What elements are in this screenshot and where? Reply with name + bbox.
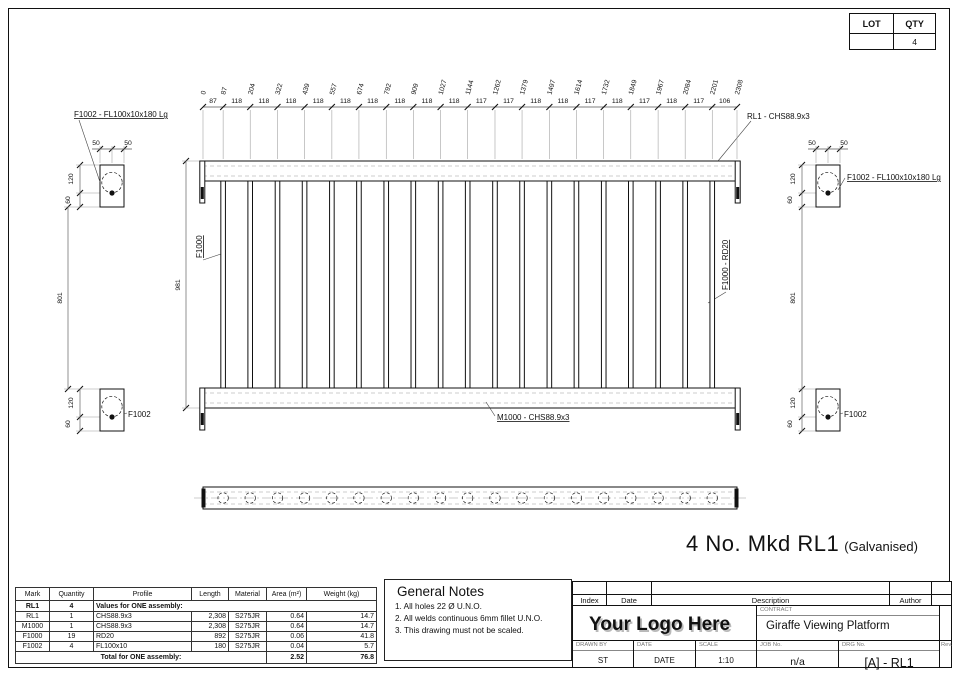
baluster — [574, 181, 579, 388]
label-top-rail: RL1 - CHS88.9x3 — [747, 112, 810, 121]
dim-segment-label: 118 — [557, 98, 568, 105]
label-plate-bottom-left: F1002 — [128, 410, 151, 419]
dim-segment-label: 118 — [449, 98, 460, 105]
dim-segment-label: 118 — [258, 98, 269, 105]
plate-detail-top-right — [816, 165, 840, 207]
leader-line — [79, 120, 100, 182]
plate-detail-bottom-left — [100, 389, 124, 431]
dim-cumulative-label: 1967 — [655, 79, 666, 96]
baluster — [656, 181, 661, 388]
dim-cumulative-label: 87 — [220, 86, 229, 95]
dim-segment-label: 117 — [693, 98, 704, 105]
rev-cell — [606, 582, 651, 594]
dim-overall-height: 981 — [175, 279, 182, 291]
bom-header-material: Material — [229, 588, 267, 601]
table-row: F1000 19 RD20 892 S275JR 0.06 41.8 — [16, 632, 377, 642]
baluster — [302, 181, 307, 388]
bom-cell: 0.64 — [267, 622, 307, 632]
dim-50: 50 — [808, 140, 816, 147]
scale-value: 1:10 — [696, 651, 756, 665]
baluster — [493, 181, 498, 388]
note-item: 2. All welds continuous 6mm fillet U.N.O… — [395, 614, 571, 623]
weld-mark — [736, 413, 739, 425]
bom-cell: 14.7 — [307, 622, 377, 632]
bom-group-mark: RL1 — [16, 601, 50, 612]
bom-cell: 19 — [50, 632, 94, 642]
dim-segment-label: 118 — [231, 98, 242, 105]
note-item: 3. This drawing must not be scaled. — [395, 626, 571, 635]
dim-cumulative-label: 909 — [410, 83, 420, 96]
hole — [109, 414, 114, 419]
bom-group-qty: 4 — [50, 601, 94, 612]
bom-cell: 1 — [50, 622, 94, 632]
weld-mark — [201, 413, 204, 425]
dim-60: 60 — [65, 196, 72, 204]
dim-cumulative-label: 439 — [302, 83, 312, 96]
plate-detail-top-left — [100, 165, 124, 207]
job-no-value: n/a — [757, 651, 838, 668]
dim-segment-label: 117 — [503, 98, 514, 105]
qty-value: 4 — [894, 34, 936, 50]
dim-segment-label: 118 — [313, 98, 324, 105]
dim-cumulative-label: 1732 — [601, 79, 612, 96]
bom-cell: 4 — [50, 642, 94, 652]
baluster — [465, 181, 470, 388]
bom-cell: 2,308 — [192, 612, 229, 622]
dim-cumulative-label: 1849 — [628, 79, 639, 96]
drawing-canvas: 981 120 60 120 60 801 120 60 8 — [0, 0, 960, 678]
baluster — [438, 181, 443, 388]
caption-main: 4 No. Mkd RL1 — [686, 531, 839, 556]
drawing-sheet: 981 120 60 120 60 801 120 60 8 — [0, 0, 960, 678]
date-label: DATE — [634, 641, 695, 651]
hole — [825, 414, 830, 419]
dim-segment-label: 118 — [612, 98, 623, 105]
date-cell: DATE DATE — [633, 640, 695, 667]
baluster — [547, 181, 552, 388]
drawn-by-value: ST — [573, 651, 633, 665]
bom-total-area: 2.52 — [267, 652, 307, 664]
rev-cell — [651, 582, 889, 594]
bom-cell: RL1 — [16, 612, 50, 622]
lot-value — [850, 34, 894, 50]
rev-header-blank — [931, 594, 952, 605]
drg-no-cell: DRG No. [A] - RL1 — [838, 640, 939, 667]
date-value: DATE — [634, 651, 695, 665]
table-row: F1002 4 FL100x10 180 S275JR 0.04 5.7 — [16, 642, 377, 652]
dim-segment-label: 106 — [719, 98, 731, 105]
leader-line — [203, 254, 221, 260]
dim-cumulative-label: 674 — [356, 83, 366, 96]
general-notes: General Notes 1. All holes 22 Ø U.N.O. 2… — [384, 579, 572, 661]
bom-header-profile: Profile — [94, 588, 192, 601]
dim-50: 50 — [124, 140, 132, 147]
dim-segment-label: 118 — [394, 98, 405, 105]
dim-cumulative-label: 2201 — [709, 79, 720, 96]
caption-suffix: (Galvanised) — [844, 539, 918, 554]
baluster — [357, 181, 362, 388]
rev-header-date: Date — [606, 594, 651, 605]
dim-segment-label: 118 — [340, 98, 351, 105]
dim-60: 60 — [65, 420, 72, 428]
rev-header-author: Author — [889, 594, 931, 605]
baluster — [248, 181, 253, 388]
table-row: RL1 1 CHS88.9x3 2,308 S275JR 0.64 14.7 — [16, 612, 377, 622]
hole — [109, 190, 114, 195]
scale-cell: SCALE 1:10 — [695, 640, 756, 667]
assembly-caption: 4 No. Mkd RL1(Galvanised) — [686, 531, 918, 557]
lot-header: LOT — [850, 14, 894, 34]
plan-end-plate — [202, 489, 206, 508]
bom-cell: 0.64 — [267, 612, 307, 622]
dim-cumulative-label: 322 — [275, 83, 285, 96]
table-row: M1000 1 CHS88.9x3 2,308 S275JR 0.64 14.7 — [16, 622, 377, 632]
qty-header: QTY — [894, 14, 936, 34]
dim-50: 50 — [840, 140, 848, 147]
baluster — [601, 181, 606, 388]
contract-value: Giraffe Viewing Platform — [757, 616, 939, 632]
bom-cell: 5.7 — [307, 642, 377, 652]
rev-column — [939, 605, 952, 640]
bom-cell: 0.04 — [267, 642, 307, 652]
rev-header-description: Description — [651, 594, 889, 605]
dim-801-left: 801 — [57, 292, 64, 304]
baluster — [330, 181, 335, 388]
dim-segment-label: 117 — [585, 98, 596, 105]
bom-cell: S275JR — [229, 632, 267, 642]
dim-cumulative-label: 1497 — [547, 79, 558, 96]
rev-header-index: Index — [573, 594, 606, 605]
bom-total-label: Total for ONE assembly: — [16, 652, 267, 664]
dim-cumulative-label: 1379 — [519, 79, 530, 96]
dim-segment-label: 87 — [209, 98, 217, 105]
label-baluster-right: F1000 - RD20 — [721, 239, 730, 290]
note-item: 1. All holes 22 Ø U.N.O. — [395, 602, 571, 611]
dim-segment-label: 117 — [476, 98, 487, 105]
dim-cumulative-label: 1027 — [438, 79, 449, 96]
baluster — [710, 181, 715, 388]
bom-cell: 2,308 — [192, 622, 229, 632]
logo-cell: Your Logo Here — [573, 605, 756, 640]
drg-no-value: [A] - RL1 — [839, 651, 939, 670]
bom-cell: S275JR — [229, 612, 267, 622]
drg-no-label: DRG No. — [839, 641, 939, 651]
bom-header-mark: Mark — [16, 588, 50, 601]
bom-cell: F1002 — [16, 642, 50, 652]
dim-120: 120 — [790, 173, 797, 185]
rev-cell — [573, 582, 606, 594]
bom-cell: M1000 — [16, 622, 50, 632]
notes-title: General Notes — [397, 584, 571, 599]
bom-cell: 1 — [50, 612, 94, 622]
bom-cell: 14.7 — [307, 612, 377, 622]
title-block: Index Date Description Author Your Logo … — [572, 581, 952, 668]
scale-label: SCALE — [696, 641, 756, 651]
dim-60: 60 — [787, 420, 794, 428]
rev-cell-bottom: Rev. — [939, 640, 952, 667]
plan-end-plate — [735, 489, 739, 508]
weld-mark — [736, 187, 739, 199]
weld-mark — [201, 187, 204, 199]
job-no-label: JOB No. — [757, 641, 838, 651]
lot-qty-table: LOT QTY 4 — [849, 13, 936, 50]
company-logo: Your Logo Here — [573, 606, 756, 636]
label-plate-bottom-right: F1002 — [844, 410, 867, 419]
plate-detail-bottom-right — [816, 389, 840, 431]
dim-segment-label: 118 — [286, 98, 297, 105]
bom-header-weight: Weight (kg) — [307, 588, 377, 601]
label-plate-top-left: F1002 - FL100x10x180 Lg — [74, 110, 168, 119]
bom-cell: 180 — [192, 642, 229, 652]
dim-120: 120 — [790, 397, 797, 409]
bom-cell: CHS88.9x3 — [94, 622, 192, 632]
dim-segment-label: 117 — [639, 98, 650, 105]
bom-cell: 0.06 — [267, 632, 307, 642]
dim-cumulative-label: 0 — [200, 90, 208, 96]
dim-cumulative-label: 1262 — [492, 79, 503, 96]
bom-header-length: Length — [192, 588, 229, 601]
dim-120: 120 — [68, 173, 75, 185]
dim-cumulative-label: 1614 — [574, 79, 585, 96]
bottom-rail — [203, 388, 737, 408]
dim-50: 50 — [92, 140, 100, 147]
dim-segment-label: 118 — [422, 98, 433, 105]
bom-cell: FL100x10 — [94, 642, 192, 652]
dim-cumulative-label: 1144 — [465, 79, 476, 95]
bom-group-label: Values for ONE assembly: — [94, 601, 377, 612]
bom-cell: S275JR — [229, 642, 267, 652]
baluster — [520, 181, 525, 388]
contract-cell: CONTRACT Giraffe Viewing Platform — [756, 605, 939, 640]
label-baluster: F1000 — [195, 235, 204, 258]
dim-60: 60 — [787, 196, 794, 204]
contract-label: CONTRACT — [757, 606, 939, 616]
hole — [825, 190, 830, 195]
baluster — [384, 181, 389, 388]
dim-120: 120 — [68, 397, 75, 409]
baluster — [683, 181, 688, 388]
label-bottom-rail: M1000 - CHS88.9x3 — [497, 413, 570, 422]
top-rail — [203, 161, 737, 181]
drawn-by-cell: DRAWN BY ST — [573, 640, 633, 667]
bom-cell: CHS88.9x3 — [94, 612, 192, 622]
job-no-cell: JOB No. n/a — [756, 640, 838, 667]
baluster — [221, 181, 226, 388]
bom-cell: 41.8 — [307, 632, 377, 642]
dim-segment-label: 118 — [530, 98, 541, 105]
dim-cumulative-label: 2084 — [682, 79, 693, 96]
bom-cell: 892 — [192, 632, 229, 642]
dim-segment-label: 118 — [666, 98, 677, 105]
bom-table: Mark Quantity Profile Length Material Ar… — [15, 587, 377, 664]
bom-cell: F1000 — [16, 632, 50, 642]
bom-cell: RD20 — [94, 632, 192, 642]
dim-cumulative-label: 204 — [247, 83, 257, 96]
bom-total-weight: 76.8 — [307, 652, 377, 664]
bom-header-quantity: Quantity — [50, 588, 94, 601]
baluster — [275, 181, 280, 388]
rev-cell — [931, 582, 952, 594]
baluster — [629, 181, 634, 388]
dim-cumulative-label: 2308 — [734, 79, 745, 96]
rev-cell — [889, 582, 931, 594]
bom-header-area: Area (m²) — [267, 588, 307, 601]
dim-801-right: 801 — [790, 292, 797, 304]
label-plate-top-right: F1002 - FL100x10x180 Lg — [847, 173, 941, 182]
dim-segment-label: 118 — [367, 98, 378, 105]
dim-cumulative-label: 792 — [383, 83, 393, 96]
rev-label: Rev. — [940, 641, 952, 648]
leader-line — [718, 121, 751, 161]
bom-cell: S275JR — [229, 622, 267, 632]
dim-cumulative-label: 557 — [329, 83, 339, 96]
drawn-by-label: DRAWN BY — [573, 641, 633, 651]
baluster — [411, 181, 416, 388]
